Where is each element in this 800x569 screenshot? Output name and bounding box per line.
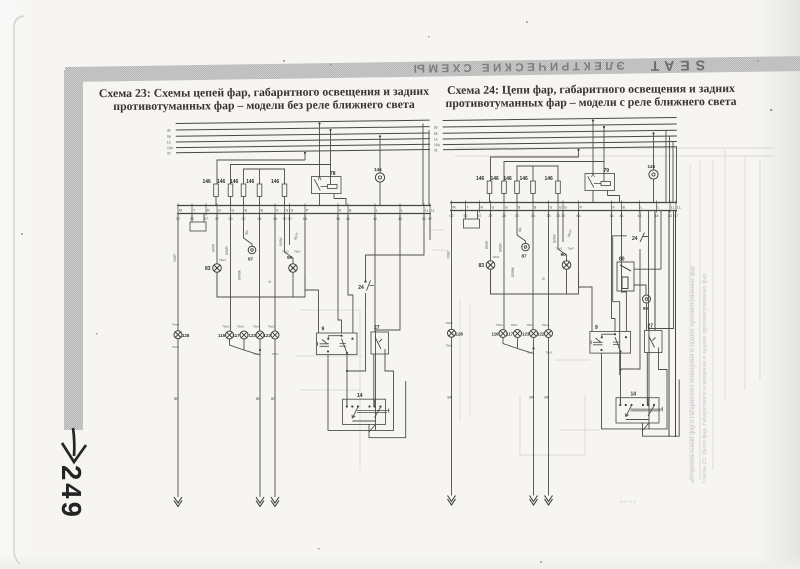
svg-text:31: 31	[167, 151, 171, 155]
svg-text:146: 146	[230, 179, 239, 185]
svg-text:42: 42	[638, 214, 642, 218]
svg-text:123: 123	[249, 333, 257, 338]
svg-text:K: K	[613, 205, 616, 209]
svg-text:B: B	[245, 208, 248, 212]
svg-text:117: 117	[506, 332, 514, 337]
svg-text:90: 90	[561, 252, 567, 258]
svg-text:G: G	[542, 277, 546, 280]
svg-text:99: 99	[643, 306, 648, 311]
svg-text:T8w/2: T8w/2	[542, 323, 550, 327]
svg-text:57: 57	[478, 214, 482, 218]
svg-text:P: P	[306, 208, 309, 212]
svg-text:G: G	[559, 205, 562, 209]
svg-text:G/SW: G/SW	[553, 235, 557, 244]
svg-text:P: P	[580, 205, 583, 209]
svg-text:87: 87	[248, 257, 254, 262]
svg-text:Y/GR: Y/GR	[447, 251, 451, 259]
svg-text:146: 146	[476, 176, 485, 182]
svg-text:G: G	[505, 205, 508, 209]
svg-text:T8w/2: T8w/2	[511, 323, 519, 327]
svg-text:116: 116	[218, 333, 226, 338]
svg-text:9: 9	[595, 325, 598, 331]
svg-text:BR: BR	[530, 396, 535, 400]
svg-text:30: 30	[167, 128, 171, 132]
svg-text:S: S	[276, 208, 279, 212]
svg-text:L: L	[376, 208, 378, 212]
svg-text:90: 90	[287, 255, 293, 261]
svg-text:Y/GR: Y/GR	[173, 254, 177, 262]
svg-text:B: B	[518, 205, 521, 209]
svg-text:G/SW: G/SW	[279, 238, 283, 247]
svg-text:G: G	[232, 208, 235, 212]
svg-text:146: 146	[520, 176, 529, 182]
svg-text:58: 58	[167, 135, 171, 139]
svg-text:T8w/2: T8w/2	[496, 323, 504, 327]
svg-text:B: B	[534, 205, 537, 209]
svg-text:L: L	[641, 205, 643, 209]
svg-text:T8w/2: T8w/2	[223, 325, 231, 329]
svg-text:128: 128	[456, 332, 464, 337]
svg-text:128: 128	[182, 333, 190, 338]
svg-text:T8w/2: T8w/2	[253, 325, 261, 329]
svg-text:146: 146	[504, 176, 513, 182]
svg-text:24: 24	[358, 285, 364, 291]
svg-text:BR: BR	[174, 397, 179, 401]
svg-text:G: G	[286, 208, 289, 212]
svg-text:G: G	[218, 208, 221, 212]
svg-text:G: G	[291, 208, 294, 212]
svg-text:T8w/1: T8w/1	[172, 345, 180, 349]
svg-text:M: M	[453, 205, 456, 209]
svg-text:24: 24	[632, 236, 638, 242]
svg-text:L: L	[658, 205, 660, 209]
svg-text:15b: 15b	[434, 143, 440, 147]
svg-text:LL: LL	[671, 205, 675, 209]
svg-text:T8a/7: T8a/7	[294, 250, 301, 254]
svg-text:GR/BK: GR/BK	[511, 266, 515, 277]
svg-text:B: B	[349, 208, 352, 212]
svg-text:9: 9	[322, 327, 325, 333]
svg-text:14: 14	[631, 392, 637, 398]
svg-text:T8w/3: T8w/3	[446, 321, 454, 325]
svg-text:S: S	[550, 205, 553, 209]
svg-text:G: G	[492, 205, 495, 209]
svg-text:T8w/2: T8w/2	[268, 325, 276, 329]
svg-text:83: 83	[205, 266, 211, 272]
svg-text:122: 122	[264, 333, 272, 338]
svg-text:146: 146	[374, 167, 382, 172]
svg-text:R: R	[481, 205, 484, 209]
svg-text:G/WR: G/WR	[225, 246, 229, 255]
svg-text:LL: LL	[425, 208, 429, 212]
svg-text:T: T	[193, 208, 196, 212]
svg-text:Схема 23: Цепи фар, габаритног: Схема 23: Цепи фар, габаритного освещени…	[701, 273, 708, 483]
svg-text:BR: BR	[256, 397, 261, 401]
svg-text:T8a/3: T8a/3	[282, 250, 289, 254]
svg-text:T8a/3: T8a/3	[556, 247, 563, 251]
svg-text:T8e/1: T8e/1	[272, 352, 279, 356]
svg-text:T8w/1: T8w/1	[446, 344, 454, 348]
svg-text:G/WR: G/WR	[499, 243, 503, 252]
svg-text:BK/Y: BK/Y	[567, 228, 574, 237]
svg-text:T8w/2: T8w/2	[527, 323, 535, 327]
svg-text:T8a/7: T8a/7	[568, 247, 575, 251]
svg-text:58: 58	[434, 132, 438, 136]
svg-text:T8a/3: T8a/3	[219, 258, 226, 262]
svg-text:122: 122	[537, 332, 545, 337]
svg-text:146: 146	[246, 179, 255, 185]
svg-text:87: 87	[522, 254, 528, 259]
svg-text:15b: 15b	[167, 146, 173, 150]
svg-text:146: 146	[203, 179, 212, 185]
svg-text:LL: LL	[431, 208, 435, 212]
svg-text:146: 146	[545, 176, 554, 182]
svg-text:BR: BR	[244, 229, 250, 235]
svg-text:M: M	[179, 208, 182, 212]
svg-text:15: 15	[434, 137, 438, 141]
svg-text:K: K	[339, 208, 342, 212]
svg-text:79: 79	[604, 168, 610, 174]
svg-text:BK/Y: BK/Y	[293, 231, 300, 240]
svg-text:T8w/2: T8w/2	[237, 325, 245, 329]
svg-text:GR/R: GR/R	[485, 240, 489, 249]
svg-text:83: 83	[479, 263, 485, 269]
svg-text:GR/BK: GR/BK	[238, 269, 242, 280]
svg-text:BR: BR	[271, 397, 276, 401]
svg-text:15: 15	[167, 140, 171, 144]
svg-text:146: 146	[217, 179, 226, 185]
svg-text:78: 78	[330, 171, 336, 177]
svg-text:R: R	[207, 208, 210, 212]
svg-text:B: B	[623, 205, 626, 209]
svg-text:30: 30	[434, 125, 438, 129]
svg-text:G: G	[564, 205, 567, 209]
svg-text:GR/R: GR/R	[212, 243, 216, 252]
svg-text:5 9 + 6 5: 5 9 + 6 5	[620, 499, 636, 504]
svg-text:L: L	[401, 208, 403, 212]
svg-text:G: G	[268, 280, 272, 283]
svg-text:116: 116	[492, 332, 500, 337]
svg-text:27: 27	[374, 325, 380, 331]
svg-text:BR: BR	[518, 226, 524, 232]
svg-text:LL: LL	[677, 205, 681, 209]
svg-text:B: B	[261, 208, 264, 212]
svg-text:146: 146	[648, 164, 656, 169]
svg-text:T8e/1: T8e/1	[527, 351, 534, 355]
svg-text:BR: BR	[448, 396, 453, 400]
svg-text:57: 57	[204, 217, 208, 221]
svg-text:27: 27	[648, 324, 654, 330]
svg-text:T8a/3: T8a/3	[493, 255, 500, 259]
svg-text:T: T	[467, 205, 470, 209]
svg-text:14: 14	[357, 393, 363, 399]
svg-text:123: 123	[522, 332, 530, 337]
svg-text:117: 117	[233, 333, 241, 338]
svg-text:T8e/1: T8e/1	[546, 351, 553, 355]
svg-text:146: 146	[271, 179, 280, 185]
svg-text:BR: BR	[545, 396, 550, 400]
svg-text:T8e/1: T8e/1	[253, 352, 260, 356]
svg-text:80: 80	[619, 257, 625, 263]
svg-text:T8w/3: T8w/3	[172, 323, 180, 327]
svg-text:146: 146	[491, 176, 500, 182]
svg-text:31: 31	[434, 148, 438, 152]
svg-text:обгоревательный фар и габаритн: обгоревательный фар и габаритного освеще…	[689, 266, 696, 483]
